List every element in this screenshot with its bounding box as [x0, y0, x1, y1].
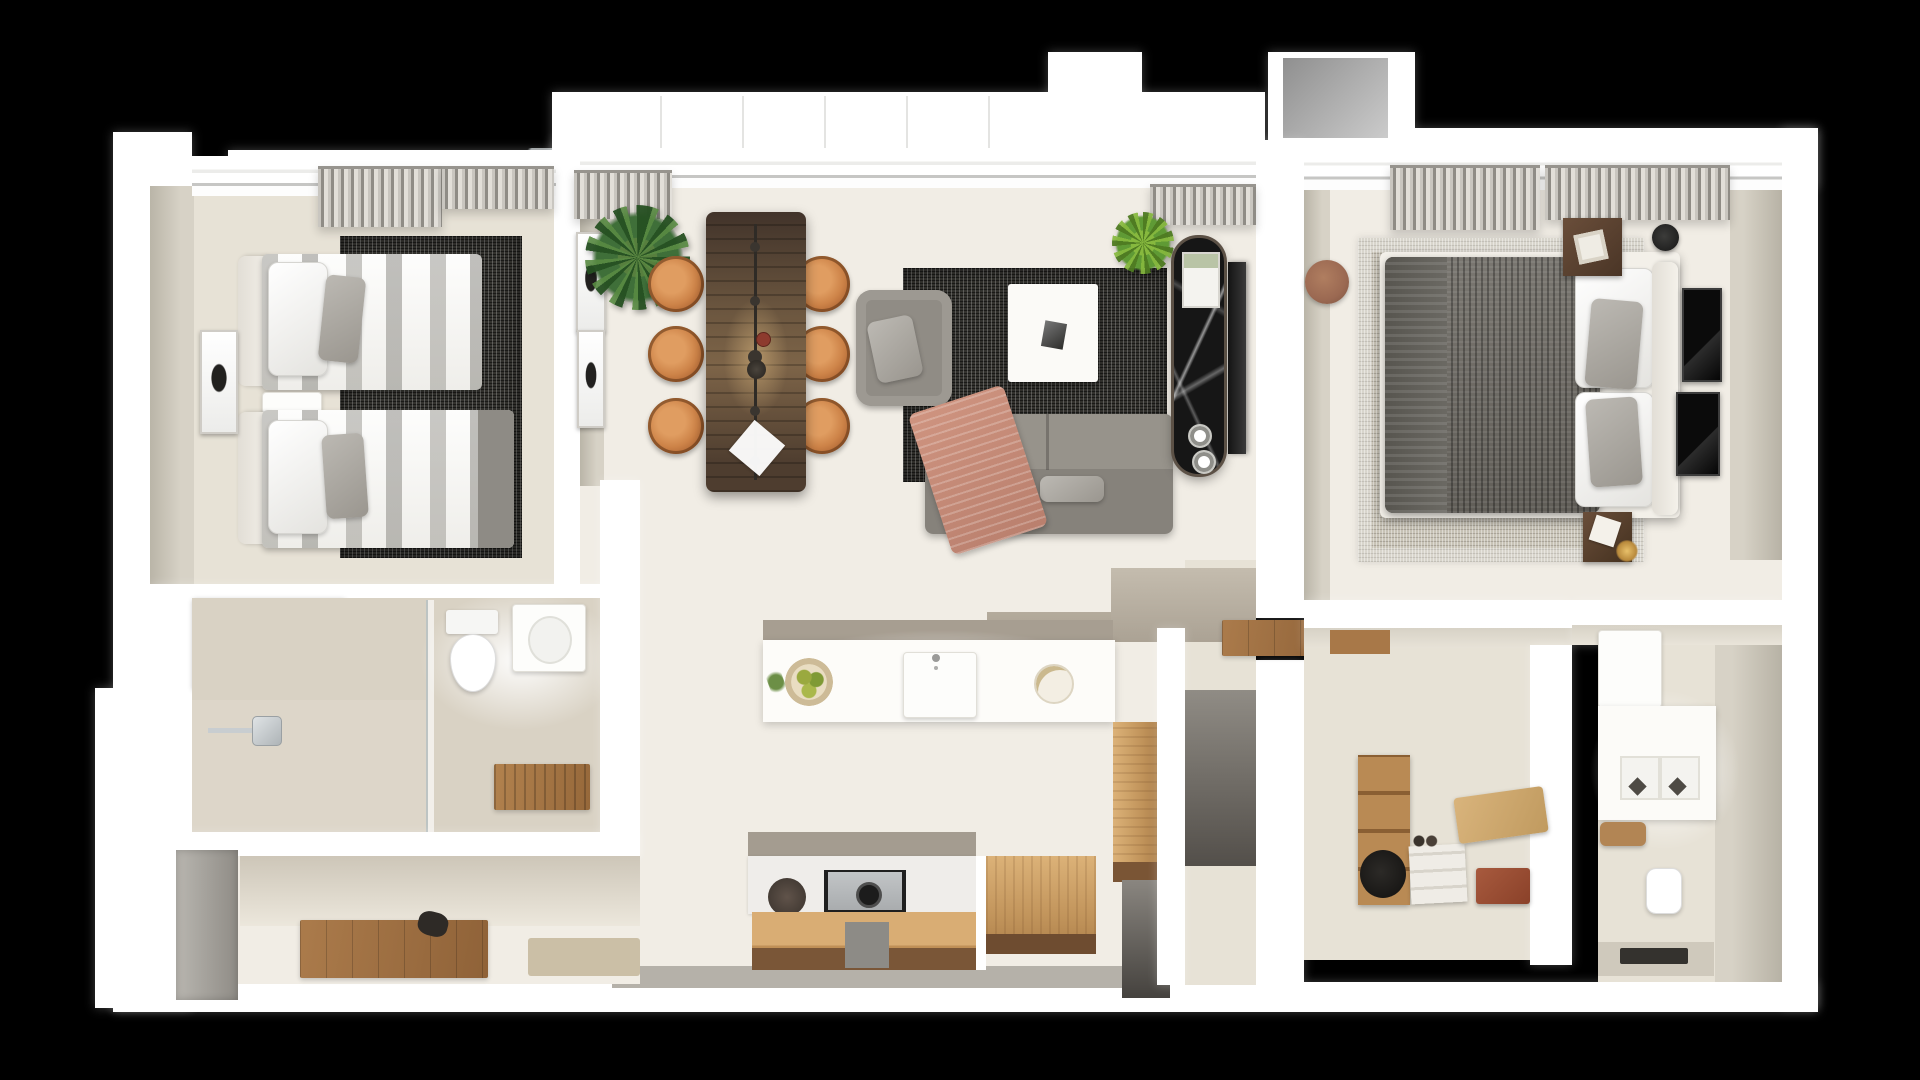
washbasin — [528, 616, 572, 664]
cabinet-divider — [976, 856, 986, 970]
table-lamp-glow — [1616, 540, 1638, 562]
living-window — [580, 148, 1256, 188]
entry-mat-2 — [528, 938, 640, 976]
dining-chair — [648, 256, 704, 312]
sofa-seat-split — [1046, 414, 1049, 470]
wall-right-outer — [1782, 128, 1818, 1008]
serving-plate — [1034, 664, 1074, 704]
nightstand-tray — [1573, 229, 1609, 265]
master-right-face — [1730, 186, 1782, 560]
vanity-basin-1 — [1620, 756, 1660, 800]
bath-duckboard — [494, 764, 590, 810]
oak-counter-return — [1113, 722, 1159, 882]
entry-doormat — [300, 920, 488, 978]
master-curtain — [1545, 165, 1730, 220]
shower-glass-screen — [426, 600, 434, 834]
hat-box — [1360, 850, 1406, 898]
window-mullion — [742, 96, 744, 148]
master-headboard — [1652, 262, 1678, 515]
console-plate — [1188, 424, 1212, 448]
perfume-bottles — [1412, 833, 1440, 849]
twin-bed-1-pillow — [268, 262, 328, 376]
shower-drain — [1620, 948, 1688, 964]
pendant-bulb — [750, 242, 760, 252]
skylight-shaft — [1283, 58, 1388, 138]
floor-lamp — [1652, 224, 1679, 251]
bedroom2-wall-art — [200, 330, 238, 434]
wall-living-master-lower — [1256, 660, 1304, 982]
oak-counter-base — [1113, 862, 1159, 882]
console-frame — [1182, 252, 1220, 308]
window-mullion — [988, 96, 990, 148]
dining-chair — [648, 326, 704, 382]
twin-bed-2-pillow — [268, 420, 328, 534]
island-sink — [903, 652, 977, 718]
red-bowl — [756, 332, 771, 347]
wall-bathroom1-right — [600, 480, 640, 860]
dining-chair — [648, 398, 704, 454]
master-accent-pillow — [1584, 298, 1643, 390]
cabinet-inset — [845, 922, 889, 968]
master-bath-right-face — [1715, 645, 1782, 982]
vanity-basin-2 — [1660, 756, 1700, 800]
master-wall-art-2 — [1676, 392, 1720, 476]
duvet-fold — [1385, 257, 1447, 513]
island-back-edge — [763, 620, 1113, 642]
wooden-stool — [1600, 822, 1646, 846]
wall-hung-toilet — [1646, 868, 1682, 914]
pouf — [1305, 260, 1349, 304]
fruit-bowl — [785, 658, 833, 706]
bedroom2-curtain — [318, 166, 442, 227]
red-storage-box — [1476, 868, 1530, 904]
bedroom2-curtain — [442, 166, 554, 209]
entry-door[interactable] — [176, 850, 238, 1000]
floor-plan-canvas — [0, 0, 1920, 1080]
pendant-bulb — [750, 406, 760, 416]
closet-desk-ledge — [1330, 630, 1390, 654]
twin-bed-2-accent-pillow — [321, 433, 369, 520]
cooktop-backsplash — [748, 832, 976, 856]
master-wall-art-1 — [1682, 288, 1722, 382]
window-mullion — [660, 96, 662, 148]
living-curtain-right — [1150, 184, 1256, 225]
pothos-plant — [1112, 212, 1174, 274]
master-accent-pillow — [1585, 396, 1643, 487]
console-plate — [1192, 450, 1216, 474]
tall-cabinet-base — [986, 934, 1096, 954]
window-mullion — [824, 96, 826, 148]
bedroom2-wall-face — [150, 186, 194, 598]
hallway-wall — [1157, 628, 1185, 985]
master-left-face — [1304, 186, 1330, 600]
dark-corridor-doorway[interactable] — [1185, 690, 1256, 866]
sink-faucet — [932, 654, 940, 662]
sofa-pillow — [1040, 476, 1104, 502]
white-storage-boxes — [1409, 844, 1468, 905]
master-curtain — [1390, 165, 1540, 230]
toilet-tank — [446, 610, 498, 634]
twin-bed-2-end-blanket — [478, 410, 514, 548]
window-mullion — [906, 96, 908, 148]
bathroom1-shower-floor — [192, 700, 430, 834]
wall-tv — [1228, 262, 1246, 454]
dining-wall-art-2 — [577, 330, 605, 428]
dark-bowl — [747, 360, 766, 379]
wall-living-master-upper — [1256, 140, 1304, 618]
coffee-table-decor — [1041, 320, 1067, 349]
bath-storage-cabinet — [1598, 630, 1662, 708]
rain-shower-head — [252, 716, 282, 746]
pendant-bulb — [750, 296, 760, 306]
cooktop-center-burner — [856, 882, 882, 908]
dark-platter — [768, 878, 806, 916]
